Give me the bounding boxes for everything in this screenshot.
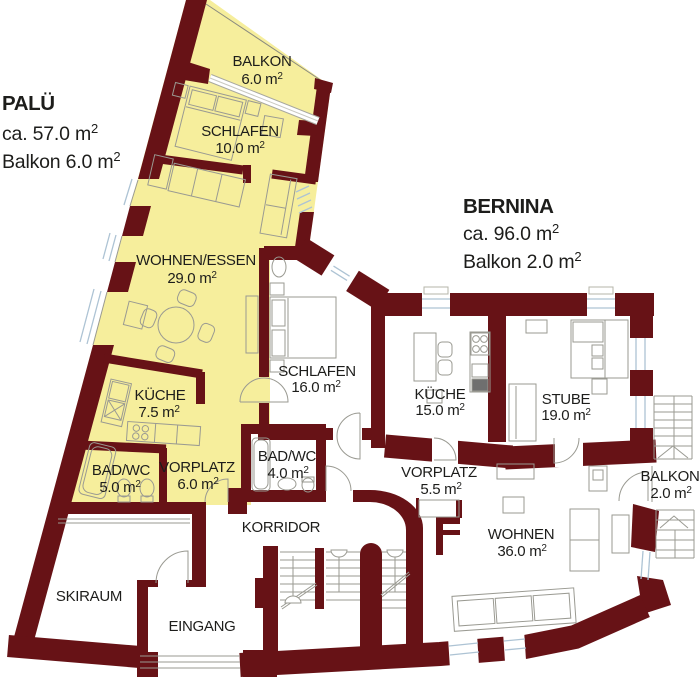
svg-text:EINGANG: EINGANG [168,618,235,635]
svg-text:15.0 m2: 15.0 m2 [415,402,465,419]
svg-text:6.0 m2: 6.0 m2 [177,476,219,493]
svg-text:19.0 m2: 19.0 m2 [541,407,591,424]
svg-text:2.0 m2: 2.0 m2 [650,485,692,502]
svg-text:WOHNEN/ESSEN: WOHNEN/ESSEN [136,252,256,269]
svg-text:VORPLATZ: VORPLATZ [159,459,235,476]
svg-text:BALKON: BALKON [232,53,291,70]
svg-text:4.0 m2: 4.0 m2 [267,465,309,482]
svg-text:16.0 m2: 16.0 m2 [291,379,341,396]
svg-text:29.0 m2: 29.0 m2 [167,270,217,287]
svg-text:KÜCHE: KÜCHE [414,385,465,403]
svg-text:BAD/WC: BAD/WC [92,462,151,479]
svg-text:STUBE: STUBE [542,391,591,408]
svg-text:36.0 m2: 36.0 m2 [497,543,547,560]
svg-text:BALKON: BALKON [640,468,699,485]
svg-text:KÜCHE: KÜCHE [134,386,185,404]
svg-text:6.0 m2: 6.0 m2 [241,71,283,88]
svg-text:ca. 57.0 m2: ca. 57.0 m2 [2,121,98,145]
svg-text:Balkon 2.0 m2: Balkon 2.0 m2 [463,249,581,273]
svg-text:5.0 m2: 5.0 m2 [99,479,141,496]
svg-text:Balkon 6.0 m2: Balkon 6.0 m2 [2,149,120,173]
svg-text:BAD/WC: BAD/WC [258,448,317,465]
svg-text:SKIRAUM: SKIRAUM [56,588,122,605]
svg-text:7.5 m2: 7.5 m2 [138,404,180,421]
svg-text:WOHNEN: WOHNEN [488,526,555,543]
svg-text:PALÜ: PALÜ [2,92,55,115]
svg-text:BERNINA: BERNINA [463,195,554,218]
svg-text:10.0 m2: 10.0 m2 [215,140,265,157]
svg-text:SCHLAFEN: SCHLAFEN [278,363,356,380]
svg-text:VORPLATZ: VORPLATZ [401,464,477,481]
svg-text:5.5 m2: 5.5 m2 [420,481,462,498]
svg-text:ca. 96.0 m2: ca. 96.0 m2 [463,221,559,245]
svg-text:SCHLAFEN: SCHLAFEN [201,123,279,140]
svg-text:KORRIDOR: KORRIDOR [242,519,321,536]
